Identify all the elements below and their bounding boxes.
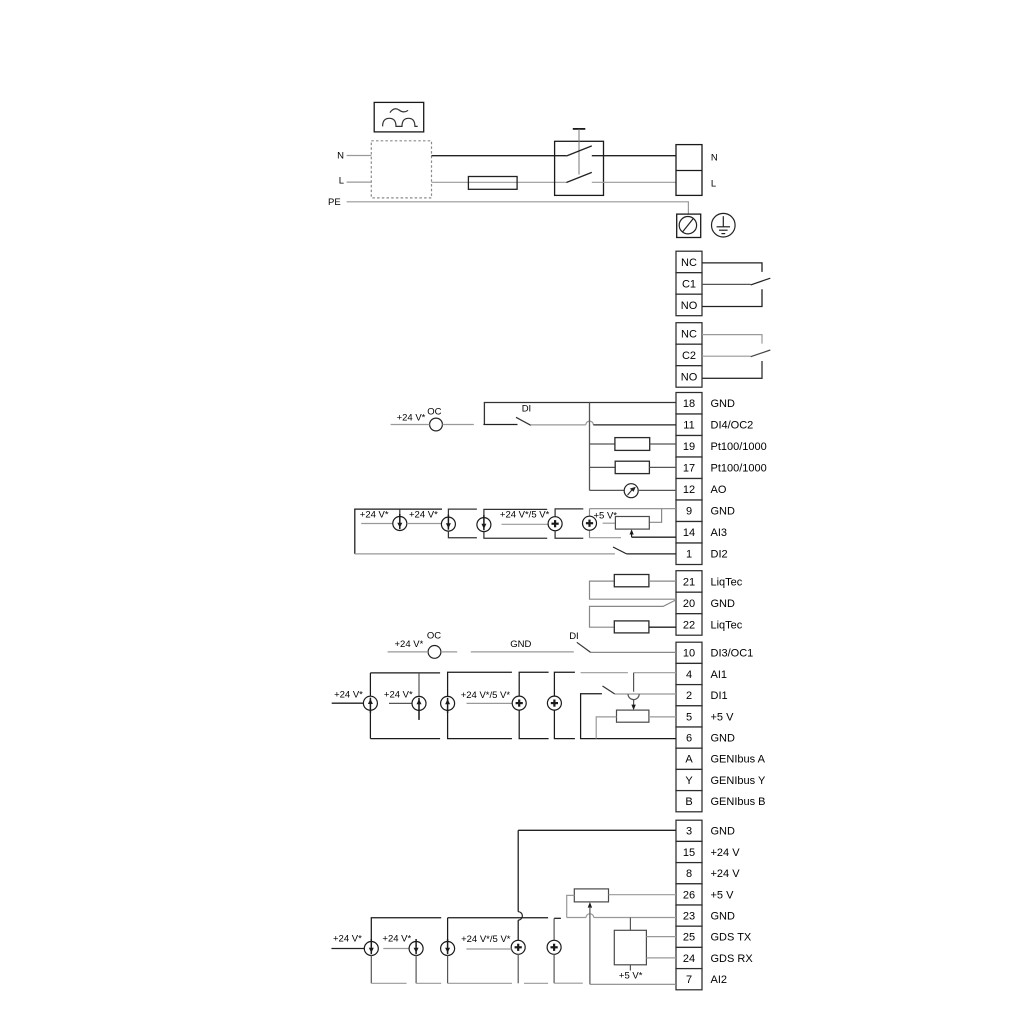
svg-text:GND: GND [711, 826, 736, 838]
svg-text:GENIbus Y: GENIbus Y [711, 775, 766, 787]
svg-text:19: 19 [683, 441, 695, 453]
svg-text:+24 V*: +24 V* [334, 690, 363, 701]
svg-text:Pt100/1000: Pt100/1000 [711, 463, 767, 475]
svg-text:18: 18 [683, 398, 695, 410]
svg-text:AI3: AI3 [711, 527, 728, 539]
svg-text:LiqTec: LiqTec [711, 619, 743, 631]
svg-text:1: 1 [686, 549, 692, 561]
svg-text:15: 15 [683, 847, 695, 859]
svg-text:LiqTec: LiqTec [711, 576, 743, 588]
svg-text:+24 V: +24 V [711, 868, 741, 880]
svg-text:OC: OC [427, 631, 441, 642]
svg-text:GDS RX: GDS RX [711, 953, 754, 965]
svg-text:GND: GND [711, 598, 736, 610]
svg-text:+5 V*: +5 V* [594, 511, 618, 522]
svg-text:12: 12 [683, 484, 695, 496]
svg-text:NO: NO [681, 371, 698, 383]
svg-text:N: N [337, 151, 344, 162]
svg-text:3: 3 [686, 826, 692, 838]
svg-text:DI: DI [522, 403, 532, 414]
svg-text:21: 21 [683, 576, 695, 588]
svg-text:DI3/OC1: DI3/OC1 [711, 648, 754, 660]
svg-text:GND: GND [510, 639, 531, 650]
svg-text:GND: GND [711, 398, 736, 410]
svg-text:22: 22 [683, 619, 695, 631]
svg-text:17: 17 [683, 463, 695, 475]
svg-text:+24 V*: +24 V* [382, 933, 411, 944]
svg-text:A: A [685, 754, 693, 766]
svg-text:NO: NO [681, 300, 698, 312]
svg-text:GND: GND [711, 506, 736, 518]
svg-text:L: L [339, 176, 344, 187]
svg-text:+5 V: +5 V [711, 711, 735, 723]
svg-text:+24 V*/5 V*: +24 V*/5 V* [461, 934, 511, 945]
svg-text:Pt100/1000: Pt100/1000 [711, 441, 767, 453]
svg-text:L: L [711, 178, 716, 189]
svg-text:NC: NC [681, 257, 697, 269]
svg-text:C2: C2 [682, 350, 696, 362]
svg-text:9: 9 [686, 506, 692, 518]
svg-text:25: 25 [683, 932, 695, 944]
svg-text:DI4/OC2: DI4/OC2 [711, 420, 754, 432]
svg-text:14: 14 [683, 527, 695, 539]
svg-text:+24 V*: +24 V* [333, 933, 362, 944]
svg-text:AI2: AI2 [711, 974, 728, 986]
svg-text:GND: GND [711, 911, 736, 923]
svg-text:+24 V*: +24 V* [397, 413, 426, 424]
svg-text:PE: PE [328, 197, 341, 208]
svg-text:DI: DI [569, 631, 579, 642]
svg-text:24: 24 [683, 953, 695, 965]
svg-text:+24 V*/5 V*: +24 V*/5 V* [500, 510, 550, 521]
svg-text:8: 8 [686, 868, 692, 880]
svg-text:OC: OC [427, 406, 441, 417]
svg-text:AO: AO [711, 484, 727, 496]
svg-text:+24 V*/5 V*: +24 V*/5 V* [461, 690, 511, 701]
svg-text:DI1: DI1 [711, 690, 728, 702]
svg-text:+24 V*: +24 V* [409, 510, 438, 521]
svg-text:5: 5 [686, 711, 692, 723]
svg-text:10: 10 [683, 648, 695, 660]
svg-text:+24 V*: +24 V* [384, 690, 413, 701]
svg-text:GDS TX: GDS TX [711, 932, 752, 944]
svg-text:NC: NC [681, 328, 697, 340]
svg-text:26: 26 [683, 889, 695, 901]
svg-text:GENIbus A: GENIbus A [711, 754, 766, 766]
svg-text:23: 23 [683, 911, 695, 923]
svg-text:AI1: AI1 [711, 669, 728, 681]
svg-text:+5 V: +5 V [711, 889, 735, 901]
svg-text:GENIbus B: GENIbus B [711, 796, 766, 808]
svg-text:7: 7 [686, 974, 692, 986]
svg-text:+24 V*: +24 V* [360, 510, 389, 521]
svg-text:4: 4 [686, 669, 692, 681]
svg-text:+24 V*: +24 V* [395, 639, 424, 650]
svg-text:N: N [711, 153, 718, 164]
svg-text:B: B [685, 796, 692, 808]
svg-text:C1: C1 [682, 278, 696, 290]
svg-text:2: 2 [686, 690, 692, 702]
svg-text:+24 V: +24 V [711, 847, 741, 859]
svg-text:DI2: DI2 [711, 549, 728, 561]
svg-text:11: 11 [683, 420, 694, 432]
svg-text:6: 6 [686, 733, 692, 745]
svg-text:20: 20 [683, 598, 695, 610]
svg-text:Y: Y [685, 775, 693, 787]
svg-text:GND: GND [711, 733, 736, 745]
svg-text:+5 V*: +5 V* [619, 971, 643, 982]
